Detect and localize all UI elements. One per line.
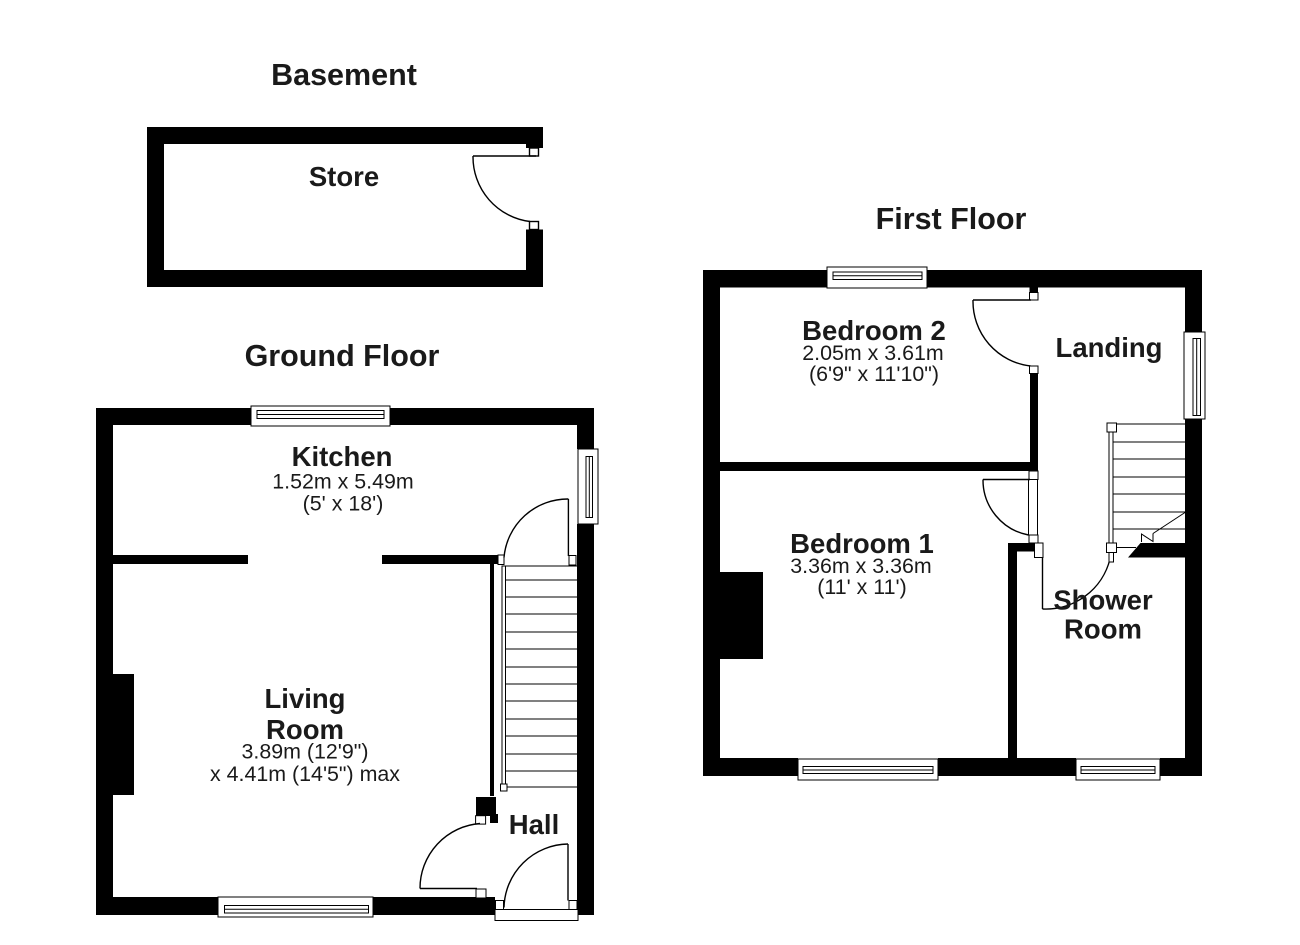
svg-text:x 4.41m (14'5") max: x 4.41m (14'5") max [210, 762, 400, 786]
svg-text:Shower: Shower [1053, 585, 1153, 616]
svg-text:Ground Floor: Ground Floor [245, 339, 440, 373]
svg-text:Hall: Hall [509, 809, 559, 840]
svg-text:3.89m (12'9"): 3.89m (12'9") [241, 740, 368, 764]
svg-text:Store: Store [309, 161, 379, 192]
svg-text:Landing: Landing [1056, 332, 1163, 363]
svg-text:(5' x 18'): (5' x 18') [303, 492, 384, 516]
svg-text:1.52m x 5.49m: 1.52m x 5.49m [272, 470, 413, 494]
svg-text:Kitchen: Kitchen [292, 441, 393, 472]
svg-text:Basement: Basement [271, 58, 417, 92]
svg-text:(11' x 11'): (11' x 11') [817, 575, 906, 599]
svg-text:(6'9" x 11'10"): (6'9" x 11'10") [809, 362, 939, 386]
svg-text:First Floor: First Floor [876, 202, 1027, 236]
svg-text:Room: Room [1064, 614, 1142, 645]
svg-text:Living: Living [265, 683, 346, 714]
